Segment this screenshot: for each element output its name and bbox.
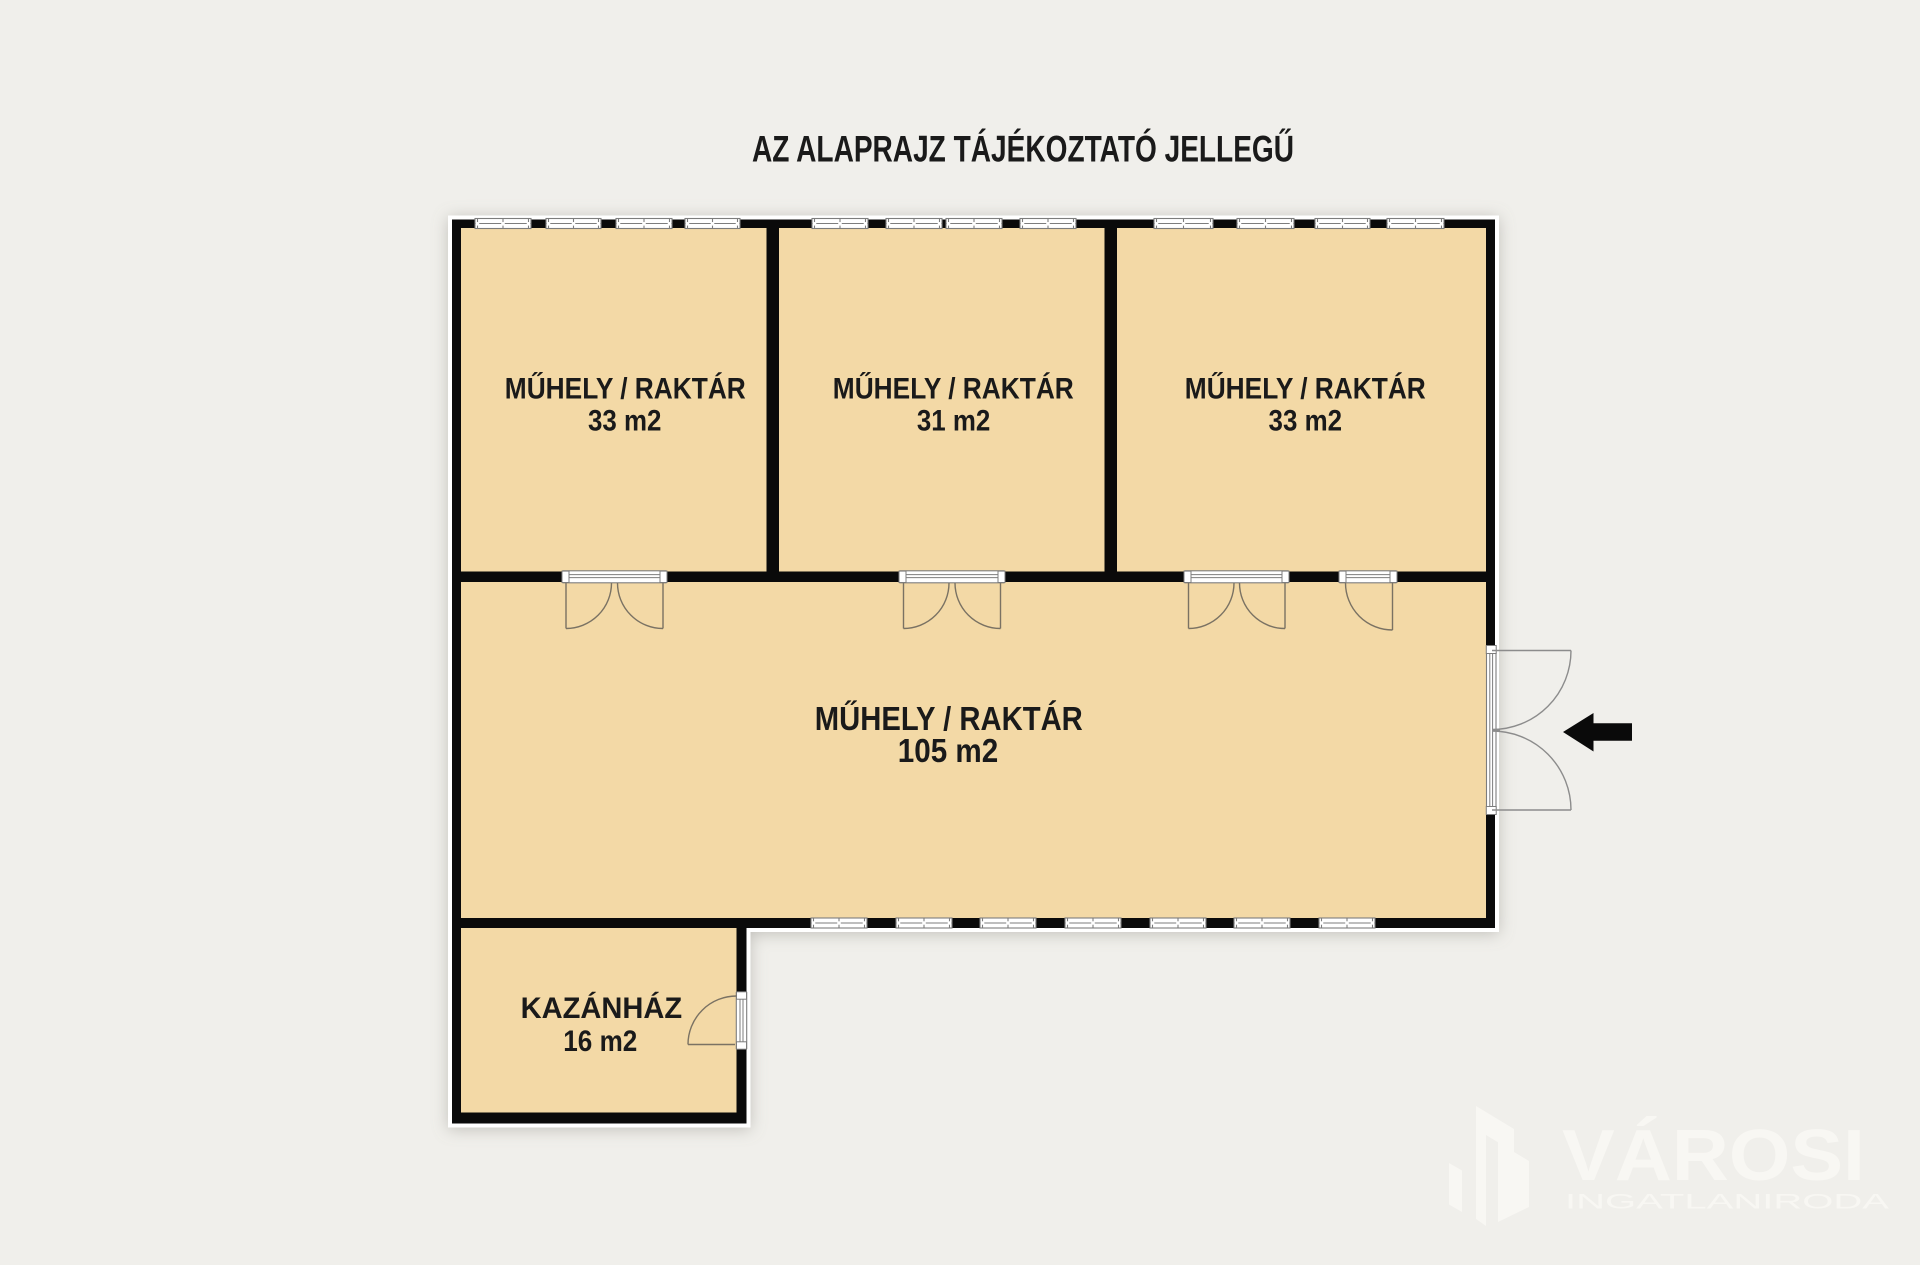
svg-text:MŰHELY / RAKTÁR: MŰHELY / RAKTÁR	[833, 372, 1074, 406]
svg-text:INGATLANIRODA: INGATLANIRODA	[1565, 1190, 1890, 1214]
svg-text:MŰHELY / RAKTÁR: MŰHELY / RAKTÁR	[1185, 372, 1426, 406]
svg-text:31 m2: 31 m2	[917, 405, 991, 438]
svg-text:33 m2: 33 m2	[1269, 405, 1343, 438]
svg-text:33 m2: 33 m2	[588, 405, 662, 438]
svg-text:105 m2: 105 m2	[898, 732, 999, 769]
svg-text:AZ ALAPRAJZ TÁJÉKOZTATÓ JELLEG: AZ ALAPRAJZ TÁJÉKOZTATÓ JELLEGŰ	[752, 128, 1294, 170]
svg-text:MŰHELY / RAKTÁR: MŰHELY / RAKTÁR	[505, 372, 746, 406]
svg-text:VÁROSI: VÁROSI	[1562, 1116, 1865, 1196]
svg-text:16 m2: 16 m2	[563, 1025, 637, 1058]
svg-text:KAZÁNHÁZ: KAZÁNHÁZ	[521, 991, 683, 1025]
